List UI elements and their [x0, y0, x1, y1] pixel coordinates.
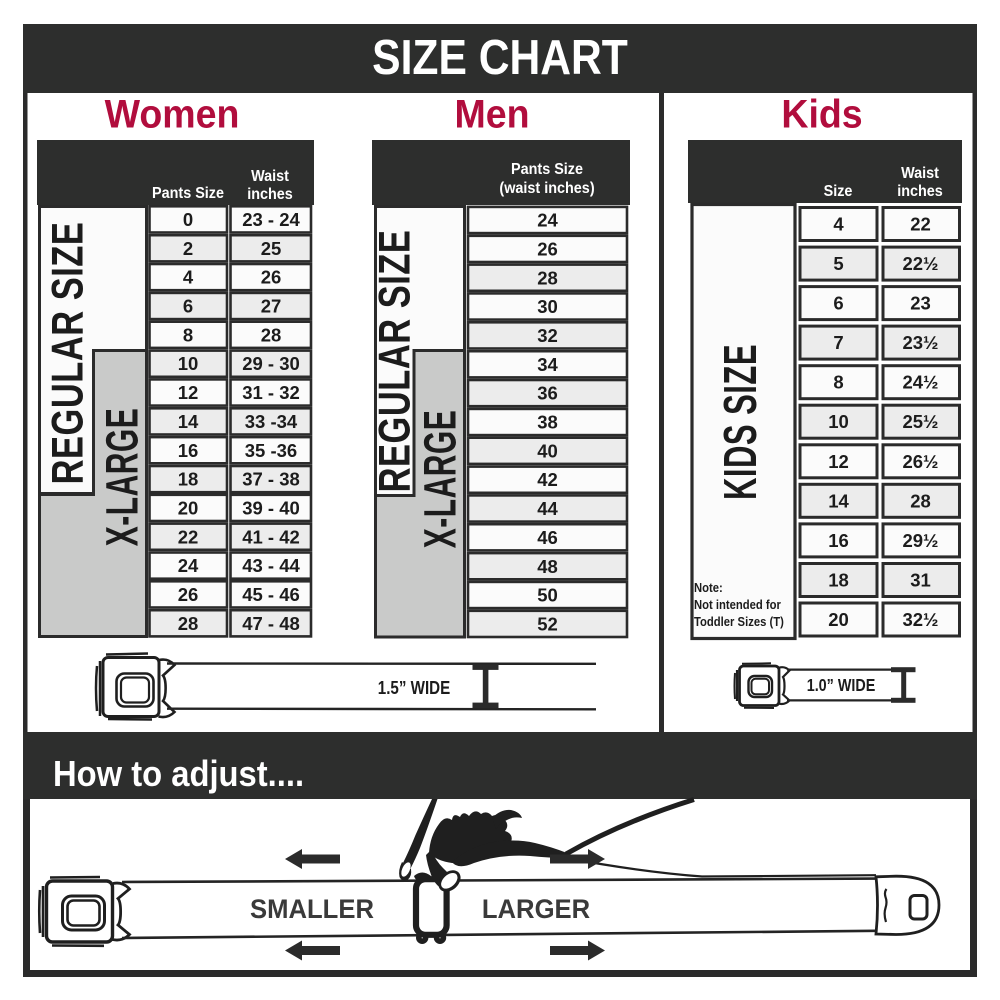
svg-text:31: 31	[910, 570, 931, 591]
svg-text:31 - 32: 31 - 32	[242, 382, 300, 403]
svg-text:23 - 24: 23 - 24	[242, 209, 300, 230]
svg-text:Pants Size: Pants Size	[152, 184, 224, 202]
svg-text:33 -34: 33 -34	[245, 411, 298, 432]
svg-text:SIZE CHART: SIZE CHART	[372, 29, 628, 84]
svg-text:45 - 46: 45 - 46	[242, 584, 300, 605]
svg-text:41 - 42: 41 - 42	[242, 526, 300, 547]
svg-text:LARGER: LARGER	[482, 893, 590, 924]
svg-text:26½: 26½	[902, 451, 938, 472]
svg-text:28: 28	[178, 613, 199, 634]
svg-text:10: 10	[828, 411, 849, 432]
svg-text:39 - 40: 39 - 40	[242, 498, 300, 519]
svg-text:36: 36	[537, 383, 558, 404]
svg-text:18: 18	[828, 570, 849, 591]
svg-text:7: 7	[833, 332, 843, 353]
svg-text:Women: Women	[105, 93, 240, 137]
svg-text:6: 6	[833, 293, 843, 314]
svg-text:37 - 38: 37 - 38	[242, 469, 300, 490]
svg-text:8: 8	[183, 324, 193, 345]
svg-text:50: 50	[537, 585, 558, 606]
svg-text:6: 6	[183, 296, 193, 317]
svg-text:How to adjust....: How to adjust....	[53, 755, 304, 795]
svg-text:20: 20	[178, 498, 199, 519]
svg-text:27: 27	[261, 296, 282, 317]
svg-text:1.0” WIDE: 1.0” WIDE	[807, 677, 876, 696]
svg-text:48: 48	[537, 556, 558, 577]
svg-text:12: 12	[178, 382, 199, 403]
svg-text:Kids: Kids	[781, 93, 862, 137]
svg-text:23: 23	[910, 293, 931, 314]
svg-text:25: 25	[261, 238, 282, 259]
svg-text:4: 4	[183, 267, 194, 288]
svg-text:34: 34	[537, 354, 558, 375]
svg-text:42: 42	[537, 469, 558, 490]
svg-text:inches: inches	[247, 185, 293, 203]
svg-text:inches: inches	[897, 182, 943, 200]
svg-text:24½: 24½	[902, 372, 938, 393]
svg-text:REGULAR SIZE: REGULAR SIZE	[43, 222, 92, 485]
svg-text:14: 14	[178, 411, 199, 432]
svg-text:Men: Men	[454, 93, 529, 137]
svg-text:46: 46	[537, 527, 558, 548]
svg-text:24: 24	[178, 555, 199, 576]
svg-text:Toddler Sizes (T): Toddler Sizes (T)	[694, 614, 784, 629]
svg-text:32: 32	[537, 325, 558, 346]
svg-text:Note:: Note:	[694, 580, 723, 595]
svg-text:2: 2	[183, 238, 193, 259]
svg-text:KIDS SIZE: KIDS SIZE	[715, 344, 767, 500]
svg-text:22½: 22½	[902, 253, 938, 274]
svg-text:44: 44	[537, 498, 558, 519]
svg-text:20: 20	[828, 609, 849, 630]
svg-text:29 - 30: 29 - 30	[242, 353, 300, 374]
svg-text:26: 26	[178, 584, 199, 605]
svg-text:29½: 29½	[902, 530, 938, 551]
svg-text:16: 16	[178, 440, 199, 461]
svg-text:8: 8	[833, 372, 843, 393]
svg-text:4: 4	[833, 214, 844, 235]
svg-text:28: 28	[910, 490, 931, 511]
svg-text:26: 26	[261, 267, 282, 288]
svg-text:24: 24	[537, 210, 558, 231]
svg-text:32½: 32½	[902, 609, 938, 630]
svg-text:Size: Size	[824, 182, 853, 200]
svg-text:X-LARGE: X-LARGE	[97, 408, 148, 546]
svg-text:22: 22	[178, 526, 199, 547]
svg-text:SMALLER: SMALLER	[250, 893, 374, 924]
svg-text:18: 18	[178, 469, 199, 490]
svg-text:Waist: Waist	[901, 164, 939, 182]
svg-text:47 - 48: 47 - 48	[242, 613, 300, 634]
svg-text:10: 10	[178, 353, 199, 374]
svg-text:43 - 44: 43 - 44	[242, 555, 300, 576]
svg-text:0: 0	[183, 209, 193, 230]
svg-text:1.5” WIDE: 1.5” WIDE	[378, 678, 450, 699]
svg-text:35 -36: 35 -36	[245, 440, 297, 461]
svg-text:Pants Size: Pants Size	[511, 160, 583, 178]
svg-text:26: 26	[537, 238, 558, 259]
svg-text:Waist: Waist	[251, 167, 289, 185]
svg-text:Not intended for: Not intended for	[694, 597, 781, 612]
svg-text:23½: 23½	[902, 332, 938, 353]
svg-text:16: 16	[828, 530, 849, 551]
svg-text:52: 52	[537, 614, 558, 635]
svg-text:28: 28	[261, 324, 282, 345]
svg-text:22: 22	[910, 214, 931, 235]
svg-text:38: 38	[537, 412, 558, 433]
svg-text:X-LARGE: X-LARGE	[415, 410, 466, 548]
svg-text:5: 5	[833, 253, 843, 274]
svg-text:28: 28	[537, 267, 558, 288]
svg-text:40: 40	[537, 440, 558, 461]
svg-text:14: 14	[828, 490, 849, 511]
svg-text:12: 12	[828, 451, 849, 472]
svg-text:REGULAR SIZE: REGULAR SIZE	[370, 230, 419, 493]
svg-text:(waist inches): (waist inches)	[499, 179, 594, 197]
svg-text:30: 30	[537, 296, 558, 317]
svg-text:25½: 25½	[902, 411, 938, 432]
